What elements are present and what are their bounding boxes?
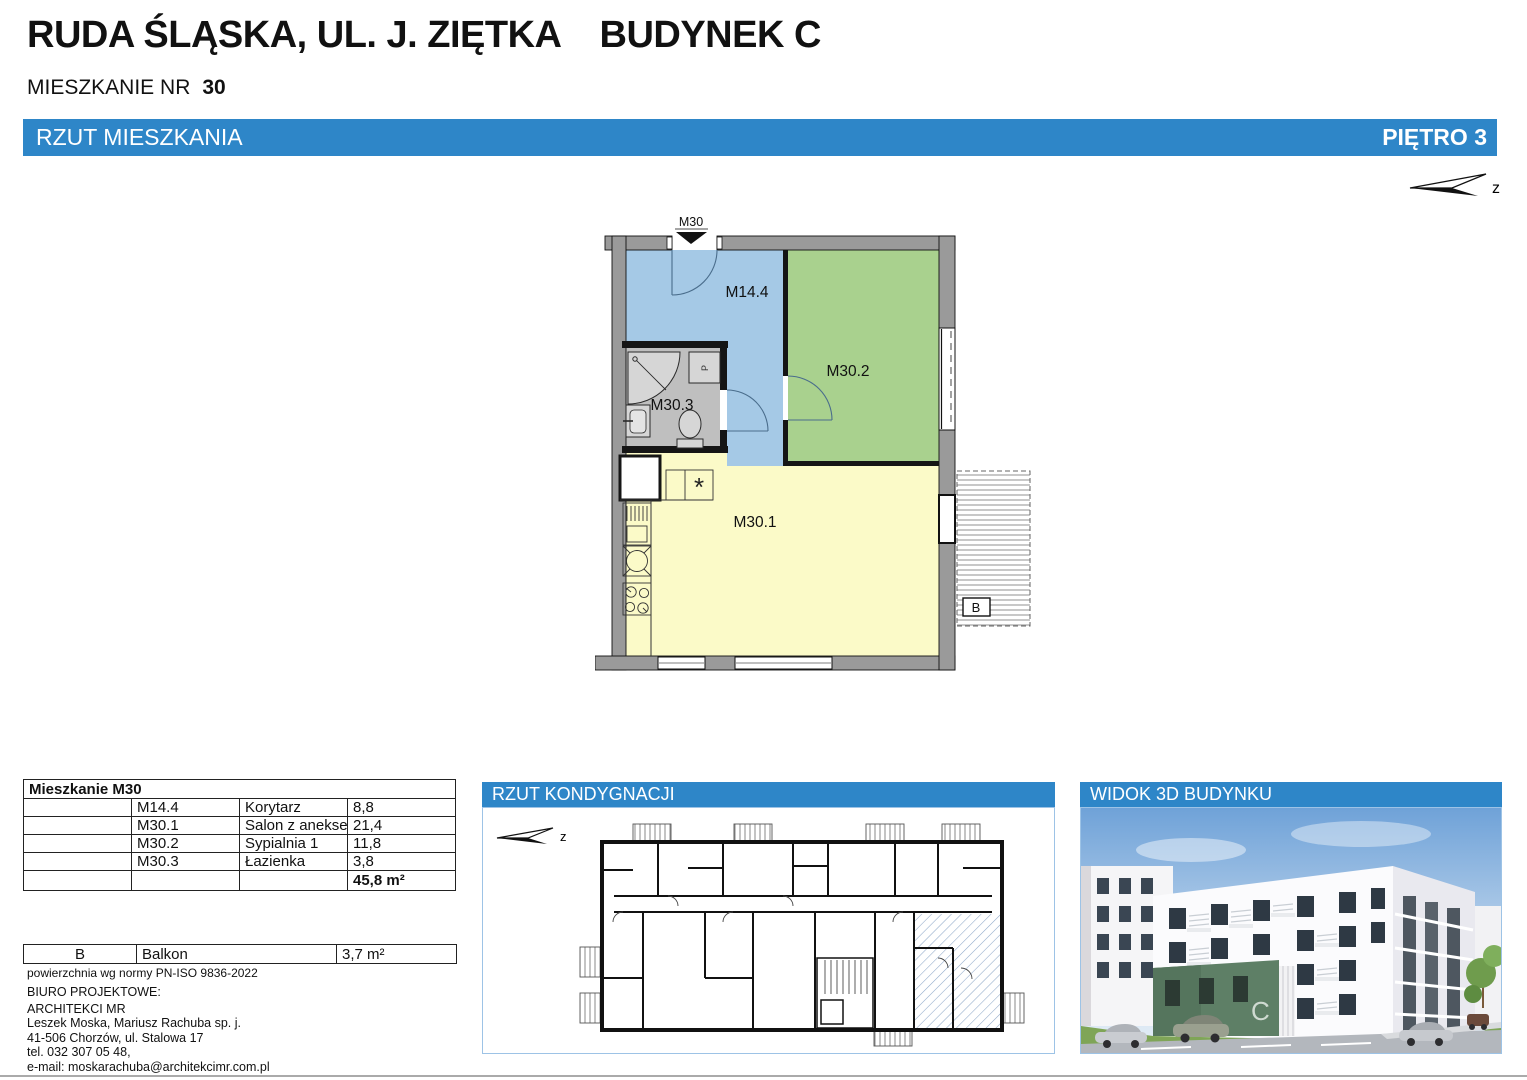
stairs-icon <box>817 958 873 1028</box>
dishwasher-icon: * <box>694 472 704 502</box>
apartment-label: MIESZKANIE NR <box>27 76 190 99</box>
fridge-icon <box>620 456 660 500</box>
table-row: M30.2 Sypialnia 1 11,8 <box>24 835 456 853</box>
table-row: M30.1 Salon z aneksem kuchennym 21,4 <box>24 817 456 835</box>
office-label: BIURO PROJEKTOWE: <box>27 985 270 1000</box>
cloud <box>1136 838 1246 862</box>
building-side-face <box>1393 866 1475 1041</box>
living-room-area <box>626 453 939 656</box>
table-row: B Balkon 3,7 m² <box>24 945 457 964</box>
bottom-window-small <box>658 657 705 669</box>
north-arrow-icon: z <box>497 828 567 844</box>
entrance-slats <box>1279 966 1295 1036</box>
room-label-bathroom: M30.3 <box>650 397 693 414</box>
toilet-icon <box>677 439 703 448</box>
wall-cap <box>717 237 722 249</box>
door-gap <box>783 376 788 420</box>
page: RUDA ŚLĄSKA, UL. J. ZIĘTKABUDYNEK C MIES… <box>0 0 1527 1080</box>
bottom-window-large <box>735 657 832 669</box>
view-3d-title: WIDOK 3D BUDYNKU <box>1080 782 1502 807</box>
table-total-row: 45,8 m² <box>24 871 456 891</box>
balcony-label: B <box>972 600 981 615</box>
room-label-corridor: M14.4 <box>725 284 768 301</box>
balcony-door <box>939 495 955 543</box>
entrance-label: M30 <box>679 215 703 229</box>
office-address: 41-506 Chorzów, ul. Stalowa 17 <box>27 1031 270 1046</box>
svg-text:P: P <box>700 365 710 371</box>
title-location: RUDA ŚLĄSKA, UL. J. ZIĘTKA <box>27 14 562 56</box>
building-floor-plan: z <box>483 808 1054 1053</box>
bedroom-area <box>788 250 939 461</box>
design-office-info: BIURO PROJEKTOWE: ARCHITEKCI MR Leszek M… <box>27 985 270 1075</box>
bedroom-window <box>939 328 955 430</box>
room-label-living: M30.1 <box>733 514 776 531</box>
page-bottom-border <box>0 1075 1527 1077</box>
table-row: M14.4 Korytarz 8,8 <box>24 799 456 817</box>
building-letter: C <box>1251 996 1270 1026</box>
total-area: 45,8 m² <box>348 871 456 891</box>
door-gap <box>720 390 727 430</box>
north-label: z <box>560 829 567 844</box>
room-label-bedroom: M30.2 <box>826 363 869 380</box>
office-phone: tel. 032 307 05 48, <box>27 1045 270 1060</box>
entrance-marker: M30 <box>675 215 708 244</box>
page-title: RUDA ŚLĄSKA, UL. J. ZIĘTKABUDYNEK C <box>27 14 821 57</box>
office-partners: Leszek Moska, Mariusz Rachuba sp. j. <box>27 1016 270 1031</box>
office-name: ARCHITEKCI MR <box>27 1002 270 1017</box>
apartment-number: 30 <box>202 76 225 99</box>
cloud <box>1291 821 1431 847</box>
balcony-area: B <box>957 471 1030 626</box>
floor-overview-panel: RZUT KONDYGNACJI z <box>482 782 1055 1054</box>
area-table: Mieszkanie M30 M14.4 Korytarz 8,8 M30.1 … <box>23 779 456 891</box>
building-3d-render: C <box>1081 808 1501 1053</box>
apartment-subtitle: MIESZKANIE NR30 <box>27 76 226 100</box>
entrance-arrow-icon <box>676 232 707 244</box>
title-building: BUDYNEK C <box>600 14 821 56</box>
view-3d-panel: WIDOK 3D BUDYNKU <box>1080 782 1502 1054</box>
office-email: e-mail: moskarachuba@architekcimr.com.pl <box>27 1060 270 1075</box>
elevator-icon <box>821 1000 843 1024</box>
section-banner: RZUT MIESZKANIA PIĘTRO 3 <box>23 119 1497 156</box>
main-building: C <box>1153 866 1475 1041</box>
banner-floor-label: PIĘTRO 3 <box>1382 124 1487 151</box>
balcony-table: B Balkon 3,7 m² <box>23 944 457 964</box>
area-table-title: Mieszkanie M30 <box>24 780 456 799</box>
banner-section-title: RZUT MIESZKANIA <box>36 124 243 151</box>
apartment-floor-plan: B <box>595 213 1065 690</box>
area-norm-footnote: powierzchnia wg normy PN-ISO 9836-2022 <box>27 966 258 980</box>
highlighted-unit <box>914 914 1000 1028</box>
wall-cap <box>667 237 672 249</box>
table-row: M30.3 Łazienka 3,8 <box>24 853 456 871</box>
north-arrow-icon: z <box>1404 168 1504 208</box>
north-label: z <box>1492 180 1500 197</box>
floor-overview-title: RZUT KONDYGNACJI <box>482 782 1055 807</box>
